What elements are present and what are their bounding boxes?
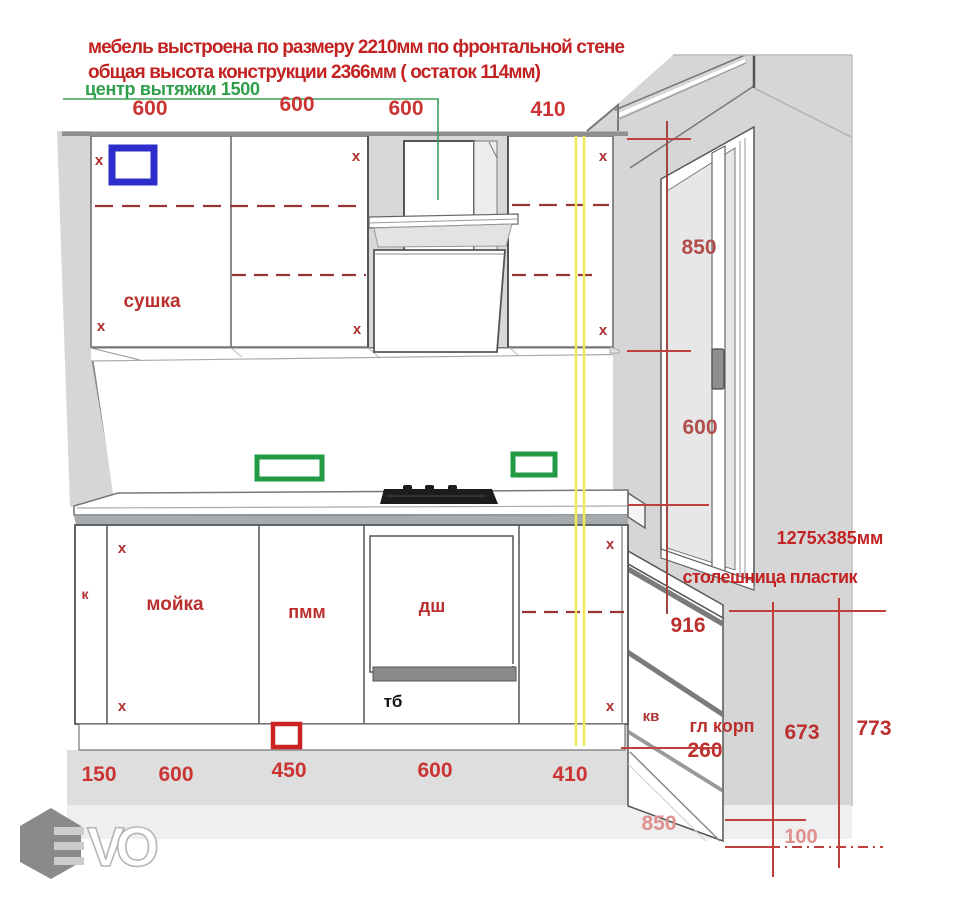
svg-text:x: x (353, 321, 362, 338)
svg-text:850: 850 (641, 812, 676, 835)
svg-text:к: к (81, 586, 89, 602)
svg-text:x: x (599, 148, 608, 165)
svg-text:600: 600 (132, 97, 167, 120)
svg-text:260: 260 (687, 739, 722, 762)
svg-text:x: x (118, 540, 127, 557)
svg-text:x: x (599, 322, 608, 339)
svg-text:x: x (97, 318, 106, 335)
svg-text:x: x (606, 698, 615, 715)
svg-text:мебель выстроена по размеру 22: мебель выстроена по размеру 2210мм по фр… (88, 37, 625, 58)
svg-text:мойка: мойка (146, 594, 204, 615)
svg-text:410: 410 (530, 98, 565, 121)
svg-text:x: x (118, 698, 127, 715)
svg-text:центр вытяжки 1500: центр вытяжки 1500 (85, 79, 260, 99)
svg-text:410: 410 (552, 763, 587, 786)
svg-text:100: 100 (784, 826, 817, 848)
svg-text:x: x (606, 536, 615, 553)
svg-text:916: 916 (670, 614, 705, 637)
svg-text:773: 773 (856, 717, 891, 740)
svg-text:600: 600 (388, 97, 423, 120)
svg-text:пмм: пмм (288, 602, 326, 622)
svg-text:гл корп: гл корп (689, 716, 754, 736)
svg-text:столешница пластик: столешница пластик (683, 567, 859, 587)
svg-text:600: 600 (417, 759, 452, 782)
svg-text:x: x (95, 152, 104, 169)
svg-text:кв: кв (643, 708, 660, 725)
svg-text:сушка: сушка (123, 291, 180, 312)
svg-text:450: 450 (271, 759, 306, 782)
svg-text:600: 600 (158, 763, 193, 786)
svg-text:тб: тб (384, 692, 403, 711)
svg-text:VO: VO (87, 815, 159, 878)
svg-text:600: 600 (279, 93, 314, 116)
svg-text:673: 673 (784, 721, 819, 744)
svg-text:150: 150 (81, 763, 116, 786)
svg-text:850: 850 (681, 236, 716, 259)
svg-text:600: 600 (682, 416, 717, 439)
svg-text:x: x (352, 148, 361, 165)
svg-text:дш: дш (419, 596, 445, 616)
svg-text:1275x385мм: 1275x385мм (777, 528, 884, 548)
